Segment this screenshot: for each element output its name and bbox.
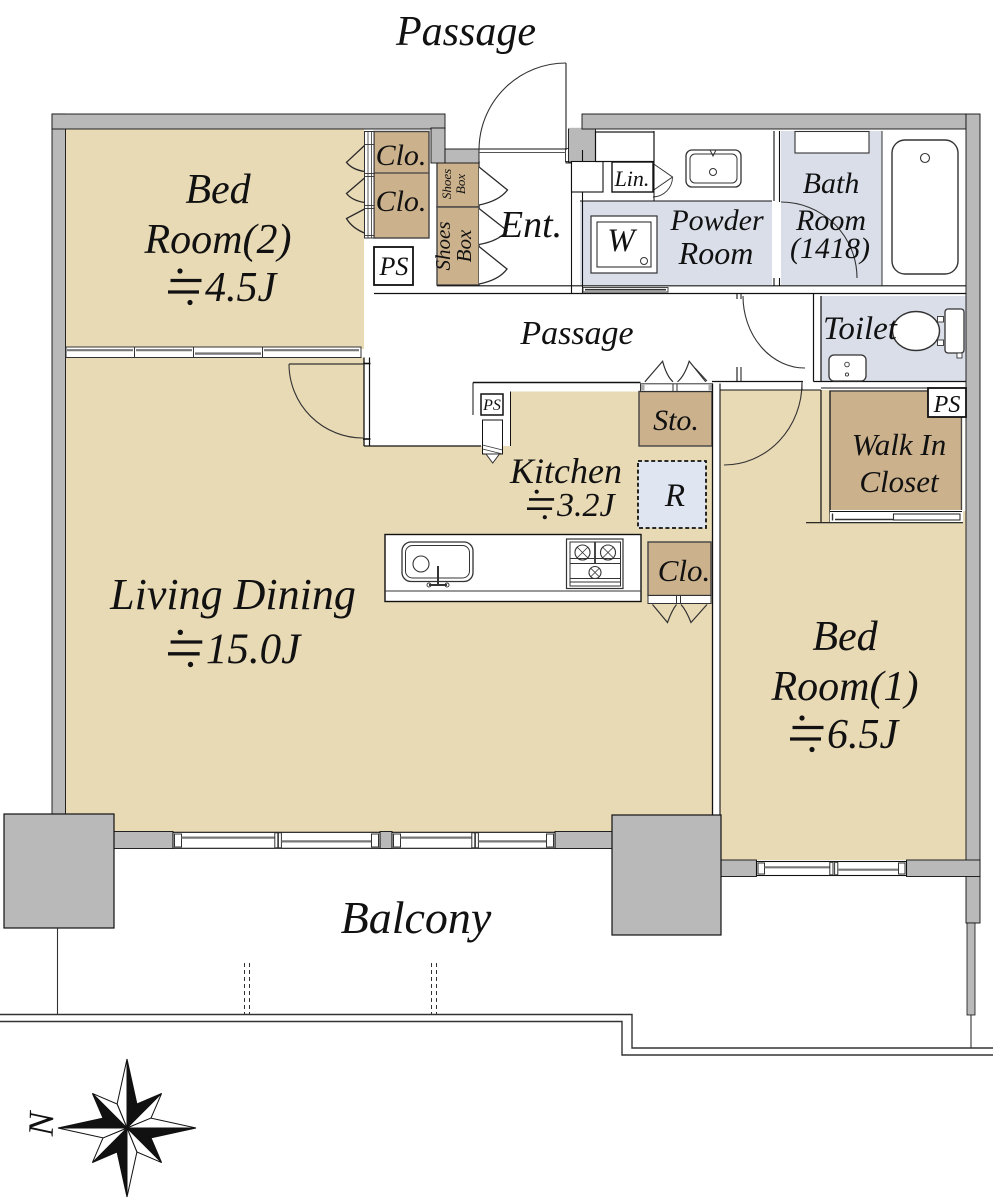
svg-text:15.0J: 15.0J xyxy=(206,626,302,673)
svg-text:(1418): (1418) xyxy=(790,232,870,265)
svg-text:Room(1): Room(1) xyxy=(771,664,919,710)
svg-text:Clo.: Clo. xyxy=(376,185,427,218)
svg-text:R: R xyxy=(664,478,685,514)
svg-text:Passage: Passage xyxy=(519,315,633,352)
svg-text:Balcony: Balcony xyxy=(341,892,492,943)
svg-text:Shoes: Shoes xyxy=(439,169,454,199)
svg-text:Bath: Bath xyxy=(803,167,860,200)
svg-text:PS: PS xyxy=(933,392,961,418)
svg-text:Powder: Powder xyxy=(669,204,764,237)
svg-text:Sto.: Sto. xyxy=(653,404,699,437)
svg-text:Kitchen: Kitchen xyxy=(509,451,622,491)
svg-text:Clo.: Clo. xyxy=(376,139,427,172)
svg-text:N: N xyxy=(21,1109,62,1137)
svg-text:Bed: Bed xyxy=(812,614,878,660)
svg-text:Box: Box xyxy=(452,229,476,262)
svg-text:Toilet: Toilet xyxy=(823,311,898,347)
svg-text:Passage: Passage xyxy=(395,9,536,55)
svg-text:Ent.: Ent. xyxy=(499,204,562,246)
svg-text:6.5J: 6.5J xyxy=(827,712,901,758)
svg-text:PS: PS xyxy=(482,397,501,414)
svg-text:Lin.: Lin. xyxy=(614,166,650,191)
svg-text:3.2J: 3.2J xyxy=(556,487,617,524)
svg-text:Bed: Bed xyxy=(185,167,251,213)
svg-text:Clo.: Clo. xyxy=(658,553,711,588)
svg-text:W: W xyxy=(607,223,637,259)
svg-text:Box: Box xyxy=(453,174,468,194)
svg-text:4.5J: 4.5J xyxy=(205,265,279,311)
svg-text:Room: Room xyxy=(678,235,754,271)
svg-text:Living Dining: Living Dining xyxy=(109,570,356,619)
svg-text:Walk In: Walk In xyxy=(852,427,946,462)
svg-text:Room(2): Room(2) xyxy=(144,217,292,263)
svg-text:Closet: Closet xyxy=(859,464,940,499)
svg-text:PS: PS xyxy=(379,252,409,281)
